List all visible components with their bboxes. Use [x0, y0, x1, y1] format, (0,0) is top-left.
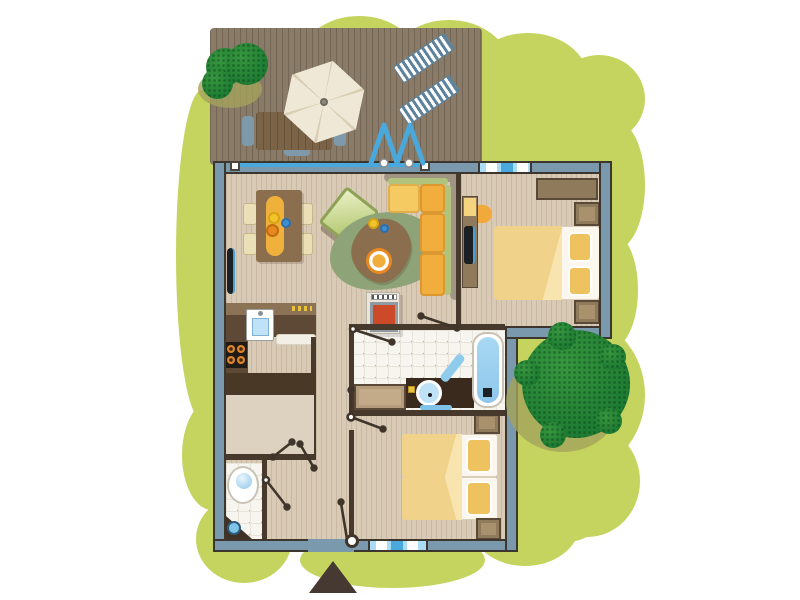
door-joint	[380, 159, 388, 167]
door-leaf-bedroom-twin	[351, 417, 383, 429]
entrance-triangle-icon	[309, 561, 357, 593]
large-tree-lobe	[548, 322, 576, 350]
door-joint	[405, 159, 413, 167]
large-tree-lobe	[600, 344, 626, 370]
large-tree-lobe	[596, 408, 622, 434]
door-swings-overlay	[0, 0, 800, 600]
door-leaf-front	[341, 503, 347, 539]
large-tree-lobe	[514, 360, 540, 386]
door-leaf-bathroom	[355, 330, 392, 342]
door-leaf-wc	[266, 480, 287, 507]
door-leaf-hall	[300, 444, 314, 468]
floor-plan-canvas	[0, 0, 800, 600]
large-tree-lobe	[540, 422, 566, 448]
front-door-hinge	[347, 536, 358, 547]
door-leaf-bedroom-main	[421, 316, 457, 328]
folding-glass-door	[371, 125, 423, 163]
